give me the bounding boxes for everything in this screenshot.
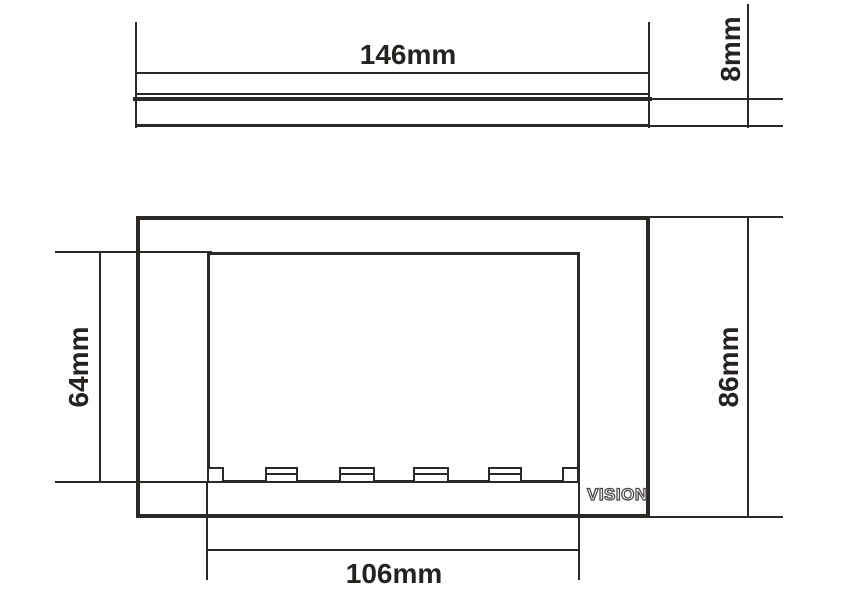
- extension-line-86mm-bottom: [650, 516, 783, 518]
- extension-line-8mm-top: [650, 98, 783, 100]
- dimension-line-86mm: [747, 216, 749, 518]
- profile-bottom-edge-line: [135, 124, 650, 127]
- extension-line-64mm-top: [55, 251, 212, 253]
- profile-right-edge-extension-line: [648, 22, 650, 128]
- dimension-label-86mm: 86mm: [715, 327, 743, 408]
- dimension-label-146mm: 146mm: [360, 41, 457, 69]
- profile-front-face-line: [133, 97, 652, 101]
- module-clip: [413, 467, 449, 481]
- dimension-line-64mm: [99, 252, 101, 483]
- extension-line-8mm-bottom: [650, 125, 783, 127]
- clip-cap-line: [339, 473, 375, 475]
- dimension-label-106mm: 106mm: [346, 560, 443, 588]
- extension-line-106mm-left: [206, 483, 208, 580]
- dimension-line-146mm: [135, 72, 650, 74]
- module-clip-right-corner: [562, 467, 579, 481]
- dimension-label-8mm: 8mm: [717, 16, 745, 81]
- extension-line-64mm-bottom: [55, 481, 212, 483]
- profile-left-edge-extension-line: [135, 22, 137, 128]
- profile-top-edge-line: [136, 93, 650, 95]
- extension-line-86mm-top: [650, 216, 783, 218]
- module-clip: [488, 467, 522, 481]
- module-clip: [265, 467, 298, 481]
- clip-cap-line: [488, 473, 522, 475]
- vision-brand-logo: VISION: [587, 487, 645, 503]
- dimension-label-64mm: 64mm: [65, 327, 93, 408]
- module-clip: [339, 467, 375, 481]
- clip-cap-line: [413, 473, 449, 475]
- clip-cap-line: [265, 473, 298, 475]
- dimension-line-8mm: [747, 4, 749, 128]
- dimension-line-106mm: [207, 549, 580, 551]
- faceplate-aperture-rectangle: [207, 252, 580, 483]
- extension-line-106mm-right: [578, 483, 580, 580]
- module-clip-left-corner: [207, 467, 224, 481]
- technical-drawing: 146mm 8mm VISION 64mm 86mm 106mm: [0, 0, 848, 610]
